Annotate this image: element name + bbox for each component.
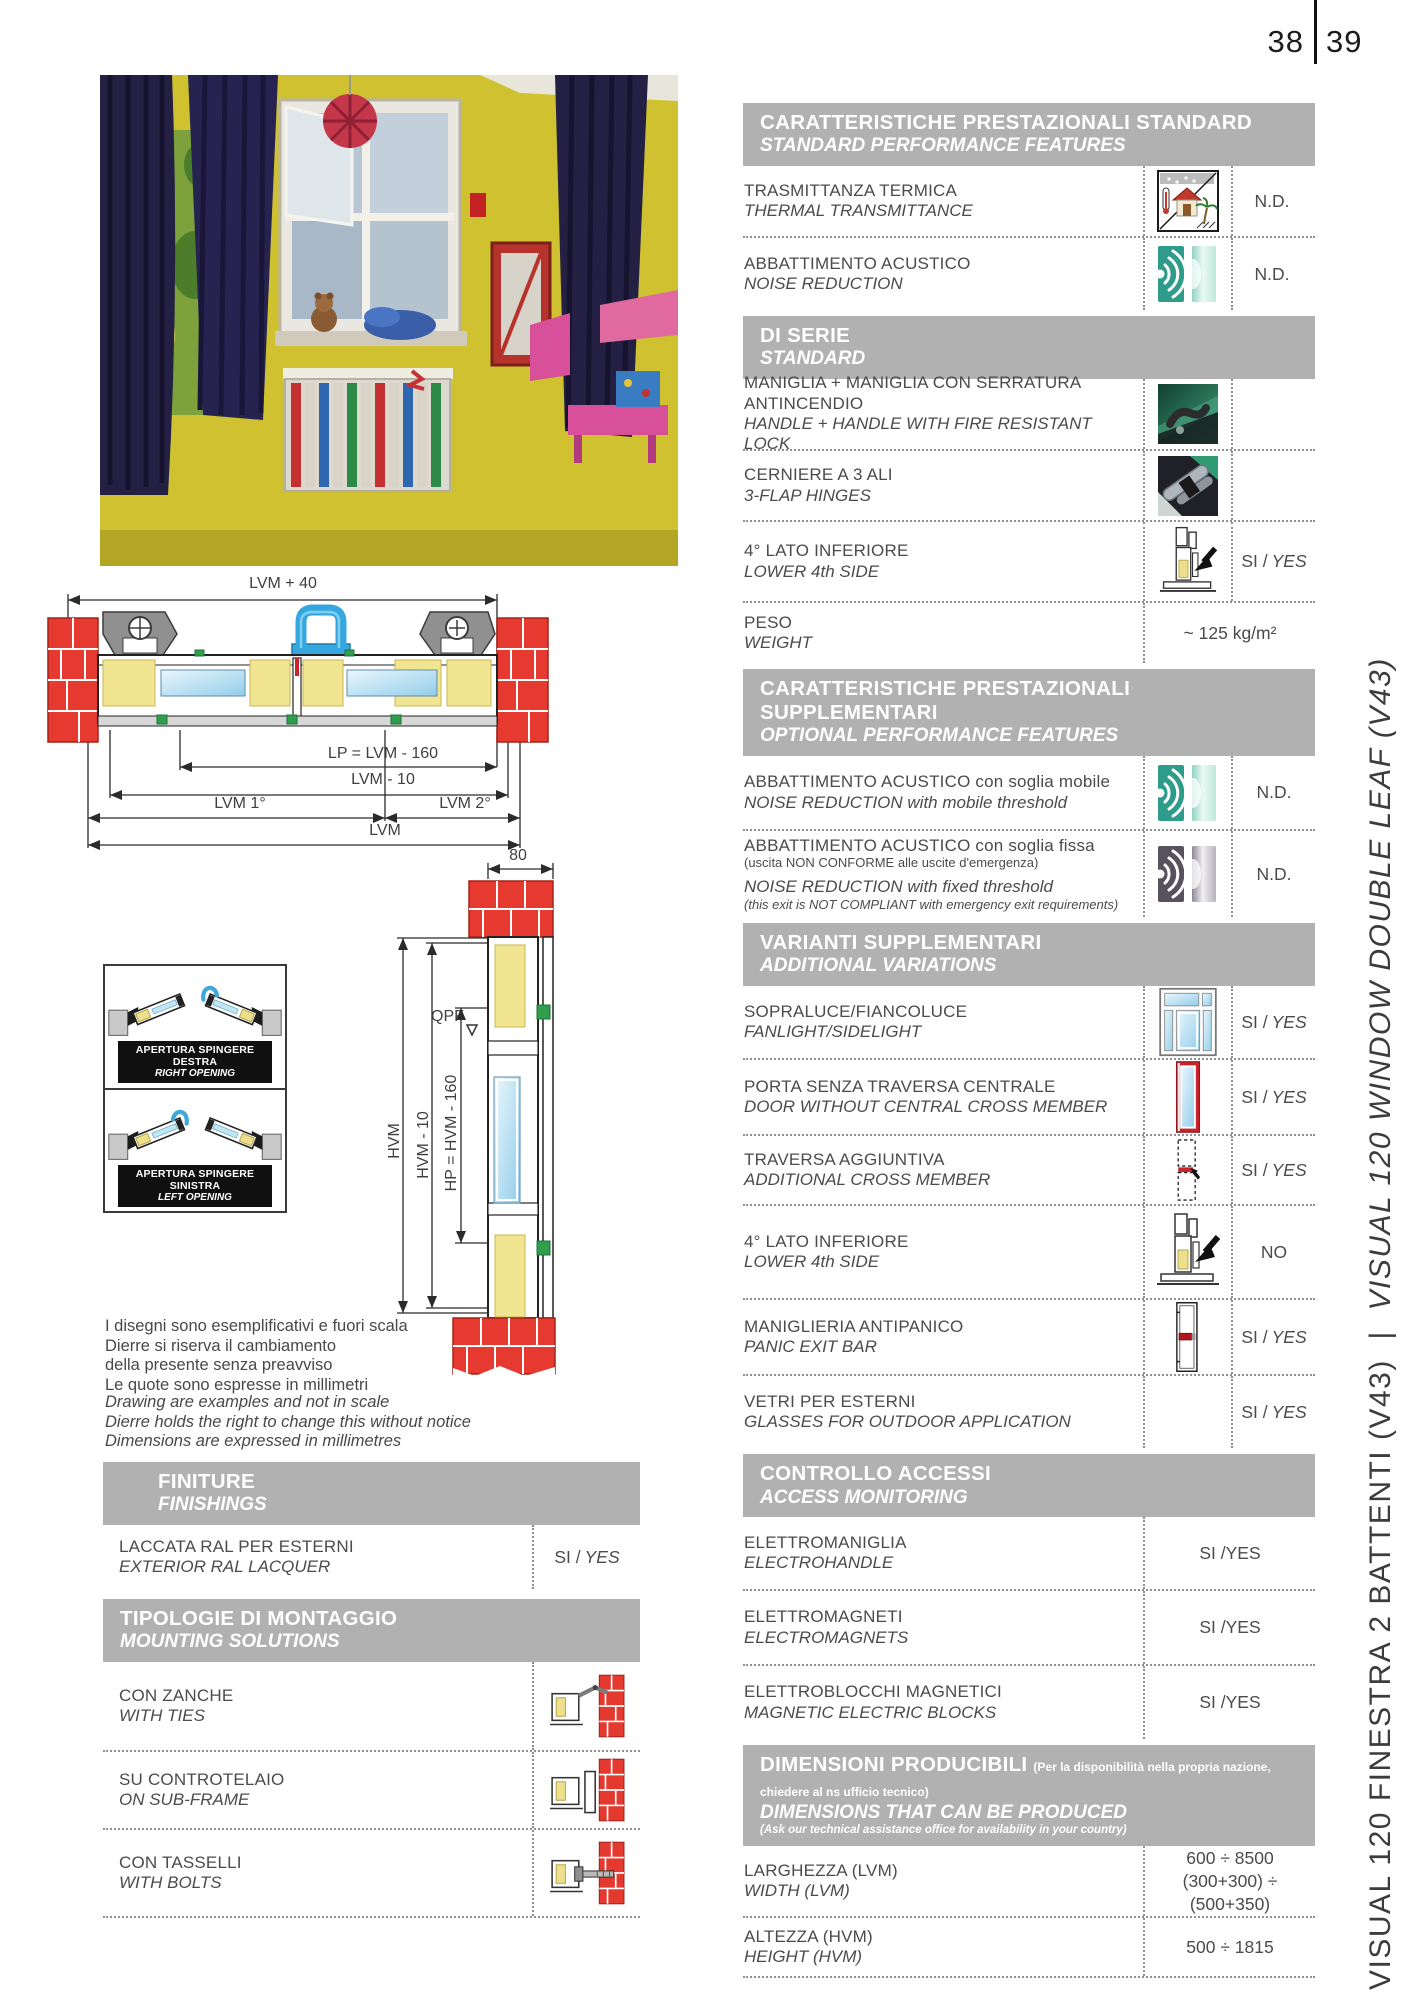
row-value: SI /YES (1233, 1060, 1315, 1134)
row-value: 500 ÷ 1815 (1143, 1918, 1315, 1976)
section-header-finishings: FINITURE FINISHINGS (103, 1462, 640, 1525)
title-english: VISUAL 120 WINDOW DOUBLE LEAF (V43) (1364, 657, 1397, 1310)
lower-4th-side-icon (1143, 522, 1233, 601)
row-value (1233, 451, 1315, 520)
header-it: CARATTERISTICHE PRESTAZIONALI SUPPLEMENT… (760, 677, 1301, 725)
row-label-en: ELECTROHANDLE (744, 1553, 1137, 1573)
row-label-en: WITH TIES (119, 1706, 526, 1726)
header-it: DIMENSIONI PRODUCIBILI (Per la disponibi… (760, 1753, 1301, 1801)
header-en: OPTIONAL PERFORMANCE FEATURES (760, 725, 1301, 747)
row-value: SI /YES (1143, 1666, 1315, 1739)
row-label-it: TRASMITTANZA TERMICA (744, 181, 1137, 201)
table-row-lower-4th-side: 4° LATO INFERIORE LOWER 4th SIDE SI /YES (743, 520, 1315, 601)
photo-kindergarten-room (100, 75, 678, 566)
row-value: N.D. (1233, 756, 1315, 829)
header-en: STANDARD (760, 348, 1301, 370)
section-header-mounting: TIPOLOGIE DI MONTAGGIO MOUNTING SOLUTION… (103, 1599, 640, 1662)
noise-reduction-fixed-icon (1143, 831, 1233, 917)
row-label-it: LACCATA RAL PER ESTERNI (119, 1537, 526, 1557)
row-value: SI /YES (1143, 1591, 1315, 1664)
thermal-transmittance-icon (1143, 166, 1233, 236)
dim-label-80: 80 (509, 847, 527, 864)
row-value: SI /YES (1233, 1376, 1315, 1448)
right-opening-label: APERTURA SPINGERE DESTRA RIGHT OPENING (118, 1041, 272, 1083)
header-it: FINITURE (158, 1470, 626, 1494)
row-label-en: ADDITIONAL CROSS MEMBER (744, 1170, 1137, 1190)
table-row-magnetic-blocks: ELETTROBLOCCHI MAGNETICI MAGNETIC ELECTR… (743, 1664, 1315, 1739)
row-label-en: WITH BOLTS (119, 1873, 526, 1893)
table-row-door-no-crossmember: PORTA SENZA TRAVERSA CENTRALE DOOR WITHO… (743, 1058, 1315, 1134)
right-opening-panel: APERTURA SPINGERE DESTRA RIGHT OPENING (105, 966, 285, 1088)
header-en: FINISHINGS (158, 1494, 626, 1516)
header-note-en: (Ask our technical assistance office for… (760, 1824, 1301, 1838)
row-label-en: NOISE REDUCTION with fixed threshold (744, 877, 1137, 897)
disclaimer-line: Drawing are examples and not in scale (105, 1393, 565, 1413)
vertical-page-title: VISUAL 120 FINESTRA 2 BATTENTI (V43) | V… (1364, 650, 1398, 1990)
header-en: ADDITIONAL VARIATIONS (760, 955, 1301, 977)
row-value: N.D. (1233, 238, 1315, 310)
section-header-access-monitoring: CONTROLLO ACCESSI ACCESS MONITORING (743, 1454, 1315, 1517)
header-en: DIMENSIONS THAT CAN BE PRODUCED (760, 1802, 1301, 1824)
ties-icon (532, 1662, 640, 1750)
fanlight-icon (1143, 986, 1233, 1058)
row-label-it: CON TASSELLI (119, 1853, 526, 1873)
row-label-it: ALTEZZA (HVM) (744, 1927, 1137, 1947)
table-row-subframe: SU CONTROTELAIO ON SUB-FRAME (103, 1750, 640, 1828)
right-opening-label-en: RIGHT OPENING (118, 1068, 272, 1079)
right-opening-label-it: APERTURA SPINGERE DESTRA (118, 1044, 272, 1068)
table-row-panic-exit-bar: MANIGLIERIA ANTIPANICO PANIC EXIT BAR SI… (743, 1298, 1315, 1374)
row-value: N.D. (1233, 831, 1315, 917)
row-label-en: HANDLE + HANDLE WITH FIRE RESISTANT LOCK (744, 414, 1137, 455)
row-label-en: NOISE REDUCTION with mobile threshold (744, 793, 1137, 813)
header-it: VARIANTI SUPPLEMENTARI (760, 931, 1301, 955)
lower-4th-side-icon (1143, 1206, 1233, 1298)
row-label-en: DOOR WITHOUT CENTRAL CROSS MEMBER (744, 1097, 1137, 1117)
dim-label-lvm2: LVM 2° (439, 795, 490, 812)
disclaimer-line: I disegni sono esemplificativi e fuori s… (105, 1317, 565, 1337)
row-value: SI /YES (1233, 986, 1315, 1058)
row-label-it: LARGHEZZA (LVM) (744, 1861, 1137, 1881)
row-note-en: (this exit is NOT COMPLIANT with emergen… (744, 898, 1137, 913)
row-value: SI /YES (1143, 1517, 1315, 1589)
header-it: DI SERIE (760, 324, 1301, 348)
row-value: N.D. (1233, 166, 1315, 236)
dim-label-lvm10: LVM - 10 (351, 771, 415, 788)
table-row-handle: MANIGLIA + MANIGLIA CON SERRATURA ANTINC… (743, 379, 1315, 449)
row-label-en: ON SUB-FRAME (119, 1790, 526, 1810)
section-header-additional-variations: VARIANTI SUPPLEMENTARI ADDITIONAL VARIAT… (743, 923, 1315, 986)
left-opening-label-en: LEFT OPENING (118, 1192, 272, 1203)
row-label-en: MAGNETIC ELECTRIC BLOCKS (744, 1703, 1137, 1723)
row-label-it: ELETTROMANIGLIA (744, 1533, 1137, 1553)
noise-reduction-icon (1143, 238, 1233, 310)
section-header-producible-dimensions: DIMENSIONI PRODUCIBILI (Per la disponibi… (743, 1745, 1315, 1846)
disclaimer-line: Dimensions are expressed in millimetres (105, 1432, 565, 1452)
table-row-hinges: CERNIERE A 3 ALI 3-FLAP HINGES (743, 449, 1315, 520)
disclaimer-line: Dierre si riserva il cambiamento (105, 1337, 565, 1357)
header-en: MOUNTING SOLUTIONS (120, 1631, 626, 1653)
section-header-standard: DI SERIE STANDARD (743, 316, 1315, 379)
left-opening-label: APERTURA SPINGERE SINISTRA LEFT OPENING (118, 1165, 272, 1207)
disclaimer-italian: I disegni sono esemplificativi e fuori s… (105, 1317, 565, 1395)
section-header-standard-performance: CARATTERISTICHE PRESTAZIONALI STANDARD S… (743, 103, 1315, 166)
row-label-it: ABBATTIMENTO ACUSTICO con soglia fissa (744, 836, 1137, 856)
row-label-it: SOPRALUCE/FIANCOLUCE (744, 1002, 1137, 1022)
disclaimer-line: Dierre holds the right to change this wi… (105, 1413, 565, 1433)
opening-diagrams-box: APERTURA SPINGERE DESTRA RIGHT OPENING (103, 964, 287, 1213)
table-row-outdoor-glasses: VETRI PER ESTERNI GLASSES FOR OUTDOOR AP… (743, 1374, 1315, 1448)
table-row-noise-reduction: ABBATTIMENTO ACUSTICO NOISE REDUCTION N.… (743, 236, 1315, 310)
row-value: 600 ÷ 8500 (300+300) ÷ (500+350) (1143, 1846, 1315, 1916)
left-opening-label-it: APERTURA SPINGERE SINISTRA (118, 1168, 272, 1192)
hinges-photo-icon (1143, 451, 1233, 520)
row-label-it: VETRI PER ESTERNI (744, 1392, 1137, 1412)
dim-label-hvm: HVM (386, 1123, 403, 1159)
header-it: CARATTERISTICHE PRESTAZIONALI STANDARD (760, 111, 1301, 135)
row-label-it: CON ZANCHE (119, 1686, 526, 1706)
row-value: NO (1233, 1206, 1315, 1298)
row-label-en: PANIC EXIT BAR (744, 1337, 1137, 1357)
panic-exit-bar-icon (1143, 1300, 1233, 1374)
row-label-it: ABBATTIMENTO ACUSTICO (744, 254, 1137, 274)
row-label-en: FANLIGHT/SIDELIGHT (744, 1022, 1137, 1042)
table-row-thermal-transmittance: TRASMITTANZA TERMICA THERMAL TRANSMITTAN… (743, 166, 1315, 236)
row-value (1233, 379, 1315, 449)
row-label-en: LOWER 4th SIDE (744, 562, 1137, 582)
row-label-it: MANIGLIA + MANIGLIA CON SERRATURA ANTINC… (744, 373, 1137, 414)
table-row-fanlight: SOPRALUCE/FIANCOLUCE FANLIGHT/SIDELIGHT … (743, 986, 1315, 1058)
row-value: SI /YES (1233, 1136, 1315, 1204)
table-row-bolts: CON TASSELLI WITH BOLTS (103, 1828, 640, 1916)
title-italian: VISUAL 120 FINESTRA 2 BATTENTI (V43) (1364, 1359, 1397, 1990)
table-row-noise-mobile-threshold: ABBATTIMENTO ACUSTICO con soglia mobile … (743, 756, 1315, 829)
row-label-it: TRAVERSA AGGIUNTIVA (744, 1150, 1137, 1170)
row-label-en: ELECTROMAGNETS (744, 1628, 1137, 1648)
row-label-en: GLASSES FOR OUTDOOR APPLICATION (744, 1412, 1137, 1432)
row-label-it: ELETTROMAGNETI (744, 1607, 1137, 1627)
dim-label-lvm: LVM (369, 822, 401, 839)
dim-label-hp: HP = HVM - 160 (443, 1075, 460, 1192)
door-icon (1143, 1060, 1233, 1134)
bolts-icon (532, 1830, 640, 1916)
disclaimer-line: della presente senza preavviso (105, 1356, 565, 1376)
page-number-divider (1314, 0, 1317, 64)
handle-photo-icon (1143, 379, 1233, 449)
row-label-en: THERMAL TRANSMITTANCE (744, 201, 1137, 221)
row-label-en: HEIGHT (HVM) (744, 1947, 1137, 1967)
table-row-width: LARGHEZZA (LVM) WIDTH (LVM) 600 ÷ 8500 (… (743, 1846, 1315, 1916)
table-row-electromagnets: ELETTROMAGNETI ELECTROMAGNETS SI /YES (743, 1589, 1315, 1664)
row-label-it: CERNIERE A 3 ALI (744, 465, 1137, 485)
header-it: TIPOLOGIE DI MONTAGGIO (120, 1607, 626, 1631)
empty-icon-cell (1143, 1376, 1233, 1448)
left-opening-panel: APERTURA SPINGERE SINISTRA LEFT OPENING (105, 1088, 285, 1212)
row-label-en: WIDTH (LVM) (744, 1881, 1137, 1901)
row-value: SI /YES (532, 1525, 640, 1589)
page-number-right: 39 (1326, 24, 1362, 60)
row-value: SI /YES (1233, 522, 1315, 601)
right-opening-diagram (105, 966, 285, 1048)
row-label-it: ELETTROBLOCCHI MAGNETICI (744, 1682, 1137, 1702)
features-table: CARATTERISTICHE PRESTAZIONALI STANDARD S… (743, 103, 1315, 1978)
left-opening-diagram (105, 1090, 285, 1172)
row-label-it: PORTA SENZA TRAVERSA CENTRALE (744, 1077, 1137, 1097)
row-label-en: WEIGHT (744, 633, 1137, 653)
disclaimer-english: Drawing are examples and not in scale Di… (105, 1393, 565, 1452)
vertical-section-drawing: 80 HVM HVM - 10 HP = HVM - 160 QPF (385, 845, 565, 1390)
row-label-it: 4° LATO INFERIORE (744, 541, 1137, 561)
row-note-it: (uscita NON CONFORME alle uscite d'emerg… (744, 856, 1137, 871)
row-value: ~ 125 kg/m² (1143, 603, 1315, 663)
title-separator: | (1364, 1311, 1397, 1360)
table-row-additional-crossmember: TRAVERSA AGGIUNTIVA ADDITIONAL CROSS MEM… (743, 1134, 1315, 1204)
table-row-noise-fixed-threshold: ABBATTIMENTO ACUSTICO con soglia fissa (… (743, 829, 1315, 917)
header-en: STANDARD PERFORMANCE FEATURES (760, 135, 1301, 157)
row-label-it: ABBATTIMENTO ACUSTICO con soglia mobile (744, 772, 1137, 792)
row-value: SI /YES (1233, 1300, 1315, 1374)
row-label-en: NOISE REDUCTION (744, 274, 1137, 294)
table-row-lower-4th-side-variant: 4° LATO INFERIORE LOWER 4th SIDE NO (743, 1204, 1315, 1298)
row-label-it: 4° LATO INFERIORE (744, 1232, 1137, 1252)
table-row-ral-lacquer: LACCATA RAL PER ESTERNI EXTERIOR RAL LAC… (103, 1525, 640, 1589)
dim-label-lvm40: LVM + 40 (249, 575, 317, 592)
row-label-it: PESO (744, 613, 1137, 633)
row-label-it: SU CONTROTELAIO (119, 1770, 526, 1790)
header-en: ACCESS MONITORING (760, 1487, 1301, 1509)
noise-reduction-icon (1143, 756, 1233, 829)
row-label-en: LOWER 4th SIDE (744, 1252, 1137, 1272)
row-label-en: 3-FLAP HINGES (744, 486, 1137, 506)
section-header-optional-performance: CARATTERISTICHE PRESTAZIONALI SUPPLEMENT… (743, 669, 1315, 756)
table-row-ties: CON ZANCHE WITH TIES (103, 1662, 640, 1750)
dim-label-hvm10: HVM - 10 (415, 1111, 432, 1179)
table-row-weight: PESO WEIGHT ~ 125 kg/m² (743, 601, 1315, 663)
page-number-left: 38 (1246, 24, 1304, 60)
table-row-height: ALTEZZA (HVM) HEIGHT (HVM) 500 ÷ 1815 (743, 1916, 1315, 1976)
row-label-en: EXTERIOR RAL LACQUER (119, 1557, 526, 1577)
row-label-it: MANIGLIERIA ANTIPANICO (744, 1317, 1137, 1337)
dim-label-lvm1: LVM 1° (214, 795, 265, 812)
header-it: CONTROLLO ACCESSI (760, 1462, 1301, 1486)
horizontal-section-drawing: LVM + 40 LP = LVM - 160 LVM - 10 LVM 1° … (45, 570, 550, 860)
crossmember-icon (1143, 1136, 1233, 1204)
subframe-icon (532, 1752, 640, 1828)
dim-label-lp: LP = LVM - 160 (328, 745, 438, 762)
table-row-electrohandle: ELETTROMANIGLIA ELECTROHANDLE SI /YES (743, 1517, 1315, 1589)
